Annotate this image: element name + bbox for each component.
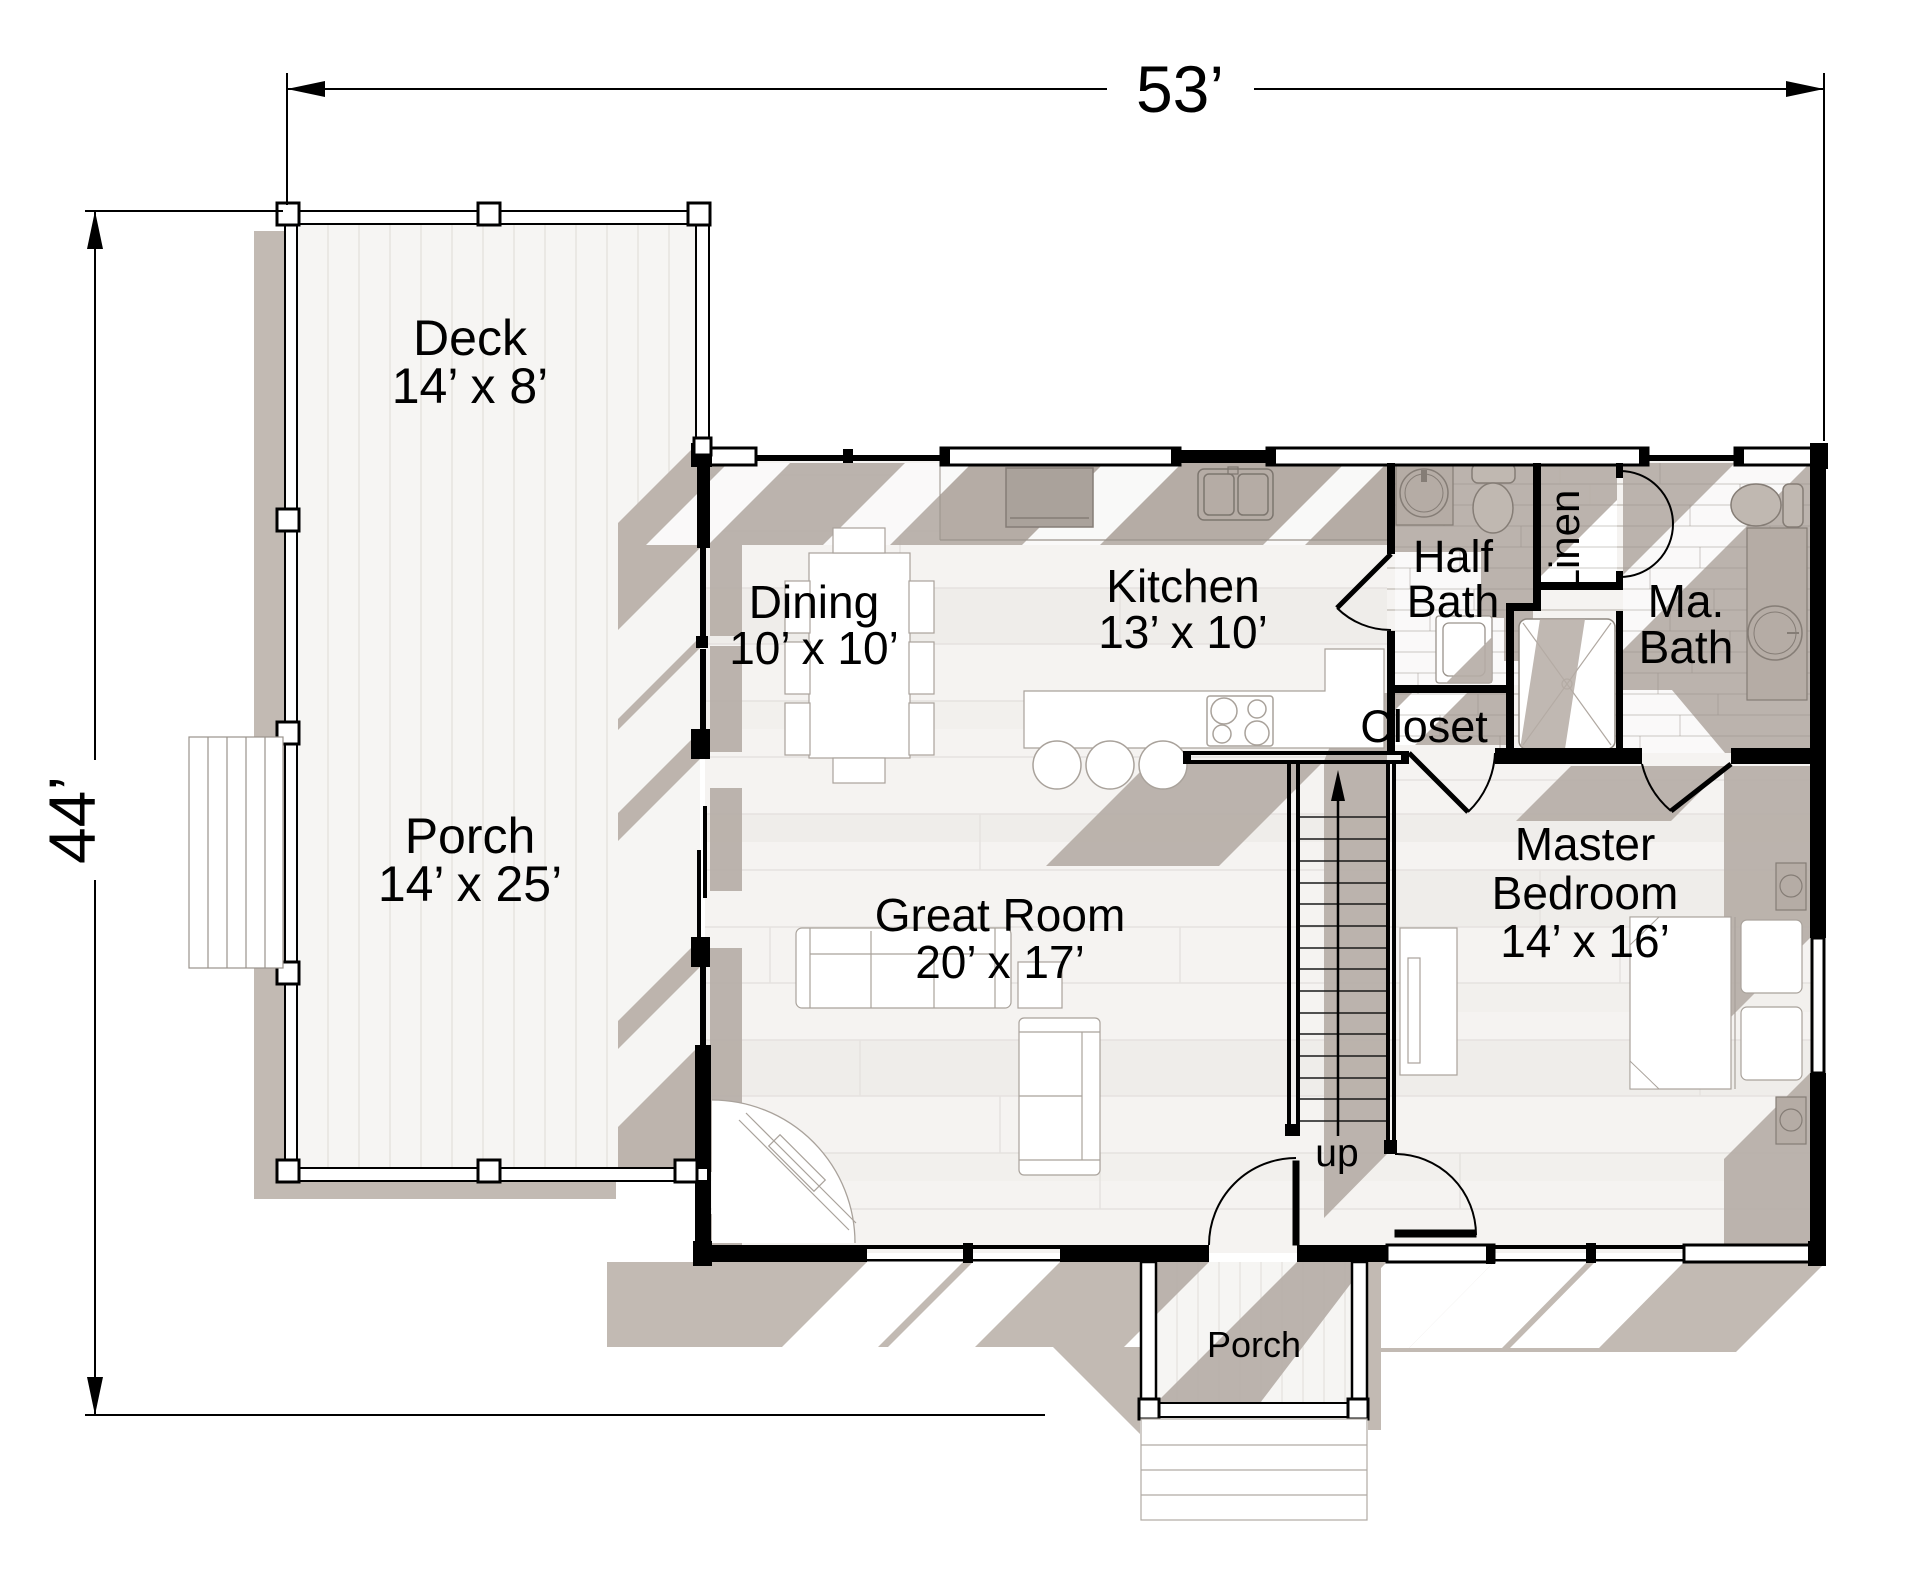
svg-text:Porch: Porch bbox=[1207, 1324, 1301, 1365]
svg-text:53’: 53’ bbox=[1136, 52, 1224, 126]
svg-text:Ma.: Ma. bbox=[1648, 575, 1725, 627]
svg-text:Great Room: Great Room bbox=[875, 889, 1126, 941]
svg-text:up: up bbox=[1315, 1132, 1358, 1175]
svg-text:Master: Master bbox=[1515, 818, 1656, 870]
svg-text:10’ x 10’: 10’ x 10’ bbox=[729, 622, 899, 674]
svg-text:Bath: Bath bbox=[1407, 576, 1500, 627]
svg-text:Linen: Linen bbox=[1541, 490, 1588, 593]
svg-text:14’ x 8’: 14’ x 8’ bbox=[392, 358, 549, 414]
svg-text:Bath: Bath bbox=[1639, 621, 1734, 673]
svg-text:13’ x 10’: 13’ x 10’ bbox=[1098, 606, 1268, 658]
svg-text:20’ x 17’: 20’ x 17’ bbox=[915, 936, 1085, 988]
svg-text:Dining: Dining bbox=[749, 576, 879, 628]
svg-text:Kitchen: Kitchen bbox=[1106, 560, 1259, 612]
svg-text:44’: 44’ bbox=[35, 776, 109, 864]
svg-text:Half: Half bbox=[1413, 531, 1494, 582]
svg-text:Bedroom: Bedroom bbox=[1492, 867, 1679, 919]
svg-text:14’ x 16’: 14’ x 16’ bbox=[1500, 915, 1670, 967]
svg-text:Closet: Closet bbox=[1360, 701, 1488, 752]
svg-text:14’ x 25’: 14’ x 25’ bbox=[378, 856, 562, 912]
